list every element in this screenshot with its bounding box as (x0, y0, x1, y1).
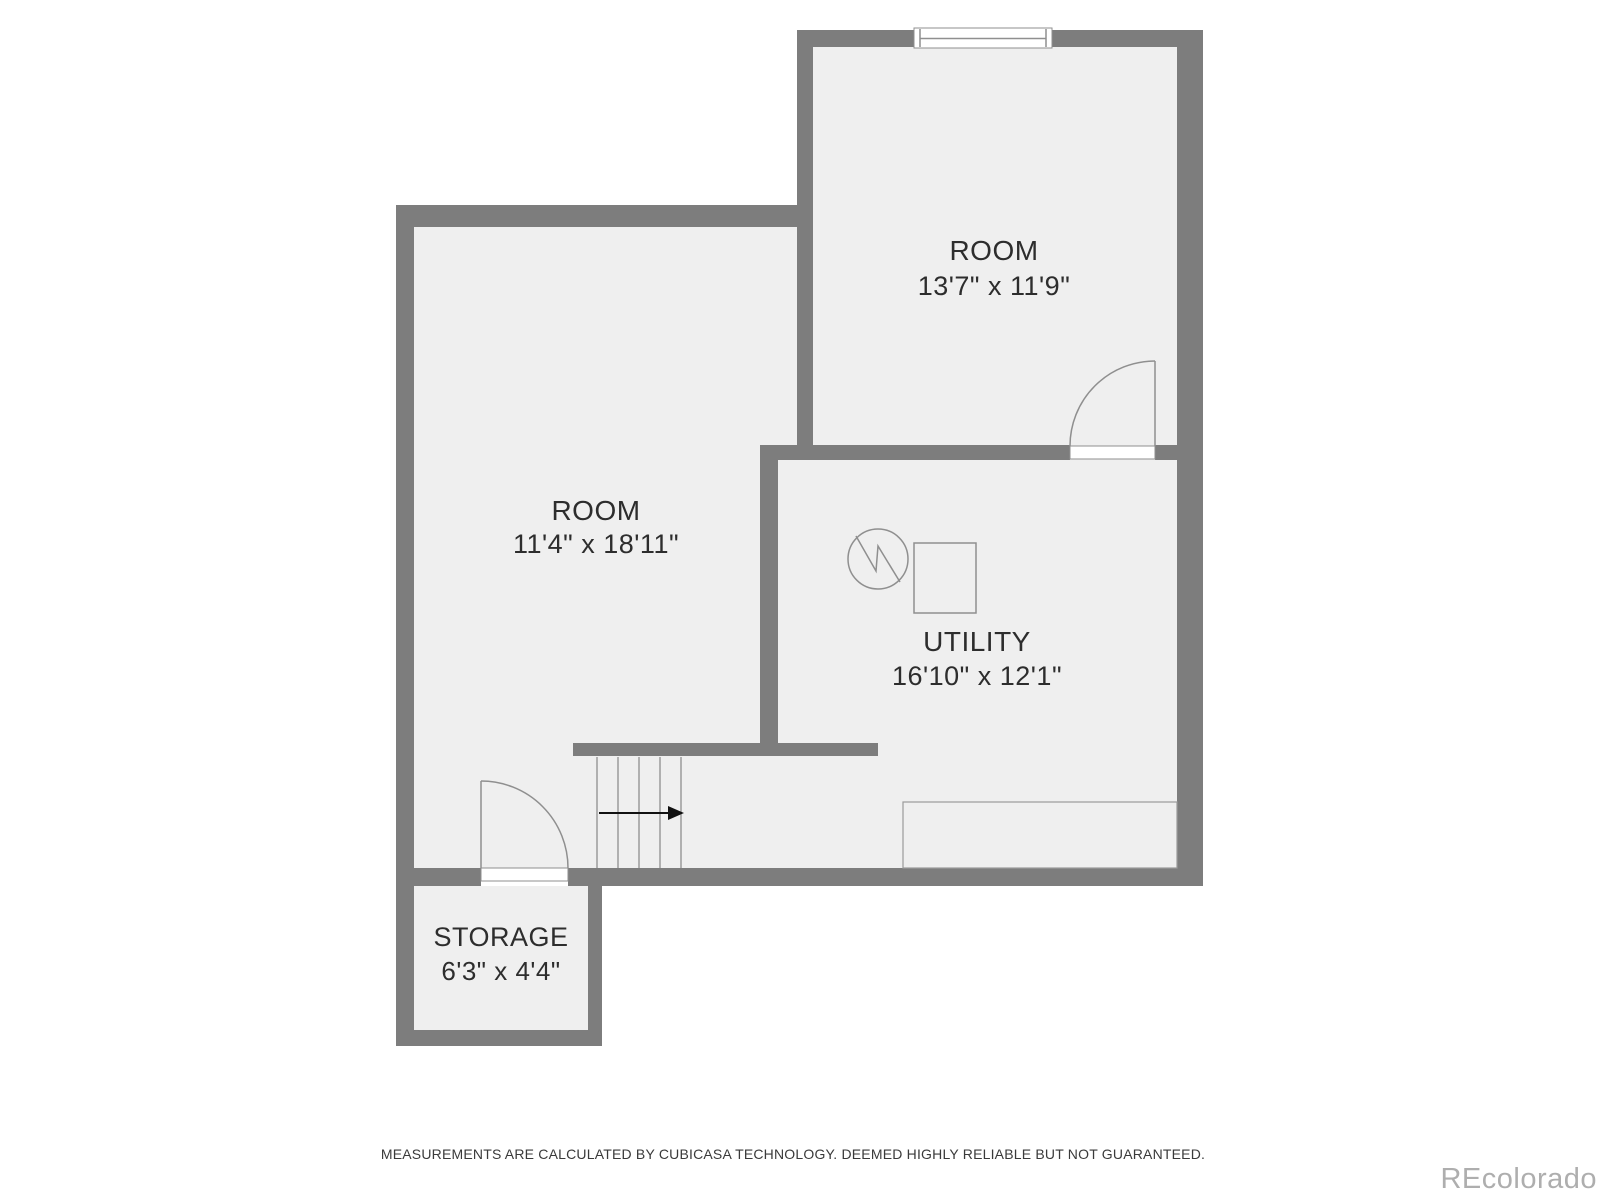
wall-right (1177, 30, 1203, 886)
floor-plan-page: ROOM 13'7" x 11'9" ROOM 11'4" x 18'11" U… (0, 0, 1600, 1200)
wall-toproom-left (797, 30, 813, 445)
window (914, 28, 1052, 48)
wall-left (396, 205, 414, 1046)
furnace-square-symbol (914, 543, 976, 613)
floor-plan-canvas: ROOM 13'7" x 11'9" ROOM 11'4" x 18'11" U… (0, 0, 1600, 1200)
wall-storage-right (588, 868, 602, 1046)
measurement-disclaimer: MEASUREMENTS ARE CALCULATED BY CUBICASA … (381, 1146, 1205, 1162)
wall-leftroom-top (396, 205, 813, 227)
utility-bench (903, 802, 1177, 868)
utility-room-dimensions: 16'10" x 12'1" (892, 661, 1062, 691)
wall-bottom-left-of-door (414, 868, 481, 886)
wall-bottom-right-of-door (568, 868, 1203, 886)
storage-room-dimensions: 6'3" x 4'4" (441, 956, 560, 986)
wall-utility-left (760, 445, 778, 756)
top-room-dimensions: 13'7" x 11'9" (918, 271, 1071, 301)
wall-utility-top-right-of-door (1155, 445, 1177, 460)
top-room-name: ROOM (949, 235, 1038, 266)
door-sill (481, 868, 568, 881)
door-sill (1070, 446, 1155, 459)
left-room-name: ROOM (551, 495, 640, 526)
utility-room-name: UTILITY (923, 626, 1031, 657)
wall-stair-top (573, 743, 878, 756)
wall-utility-top-left-of-door (760, 445, 1070, 460)
storage-room-name: STORAGE (433, 922, 568, 952)
wall-storage-bottom (396, 1030, 602, 1046)
recolorado-watermark: REcolorado (1440, 1163, 1597, 1195)
left-room-dimensions: 11'4" x 18'11" (513, 529, 679, 559)
